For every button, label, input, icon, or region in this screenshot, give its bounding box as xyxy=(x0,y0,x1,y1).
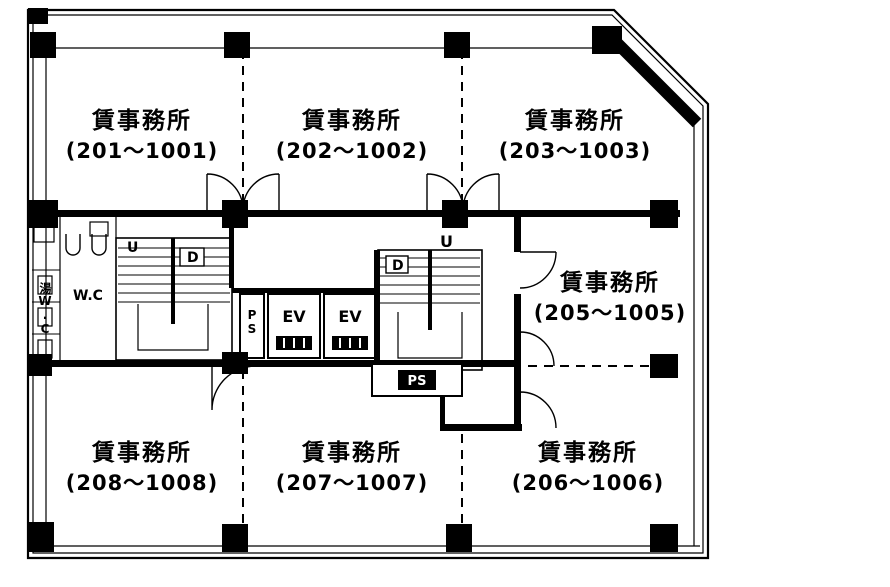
elevator-1: EV xyxy=(268,294,320,358)
urinal-fixture xyxy=(66,234,80,255)
elevator-2: EV xyxy=(324,294,376,358)
room-name: 賃事務所 xyxy=(559,269,660,296)
stair-up-label: U xyxy=(440,232,453,251)
column xyxy=(28,8,48,24)
column xyxy=(222,524,248,552)
elevator-label: EV xyxy=(338,307,362,326)
door-arc xyxy=(463,174,499,210)
wall-segment xyxy=(440,396,445,428)
room-units: (201〜1001) xyxy=(66,139,218,163)
room-201-1001: 賃事務所 (201〜1001) xyxy=(66,107,218,163)
wall-segment xyxy=(514,212,521,252)
stair-down-label: D xyxy=(187,250,199,266)
room-units: (203〜1003) xyxy=(499,139,651,163)
stair-rail xyxy=(171,238,175,324)
wc-area: W.C 湯W.C xyxy=(32,217,116,360)
room-name: 賃事務所 xyxy=(537,439,638,466)
floor-plan-page: W.C 湯W.C U D PS EV EV xyxy=(0,0,890,587)
wall-segment xyxy=(232,288,378,293)
room-units: (207〜1007) xyxy=(276,471,428,495)
door-arc xyxy=(243,174,279,210)
wc-label: W.C xyxy=(73,288,103,304)
room-207-1007: 賃事務所 (207〜1007) xyxy=(276,439,428,495)
room-206-1006: 賃事務所 (206〜1006) xyxy=(512,439,664,495)
column xyxy=(28,522,54,552)
room-202-1002: 賃事務所 (202〜1002) xyxy=(276,107,428,163)
column xyxy=(650,354,678,378)
urinal-fixture xyxy=(92,234,106,255)
ps-duct: PS xyxy=(372,364,462,396)
stairwell-right: D U xyxy=(378,232,482,370)
floor-plan-drawing: W.C 湯W.C U D PS EV EV xyxy=(0,0,890,587)
column xyxy=(224,32,250,58)
column xyxy=(444,32,470,58)
room-units: (205〜1005) xyxy=(534,301,686,325)
room-name: 賃事務所 xyxy=(301,439,402,466)
room-units: (202〜1002) xyxy=(276,139,428,163)
door-arc xyxy=(520,252,556,288)
room-name: 賃事務所 xyxy=(301,107,402,134)
column xyxy=(446,524,472,552)
column xyxy=(592,26,622,54)
room-208-1008: 賃事務所 (208〜1008) xyxy=(66,439,218,495)
service-room-label: 湯W.C xyxy=(38,281,52,336)
room-name: 賃事務所 xyxy=(91,107,192,134)
stair-rail xyxy=(428,250,432,330)
wall-segment xyxy=(440,424,522,431)
ps-duct-label: PS xyxy=(408,374,427,389)
pipe-shaft-label: PS xyxy=(245,308,259,336)
column xyxy=(30,32,56,58)
column xyxy=(650,524,678,552)
stair-down-label: D xyxy=(392,258,404,274)
room-units: (206〜1006) xyxy=(512,471,664,495)
stairwell-left: U D xyxy=(116,238,232,360)
door-arc xyxy=(520,332,554,366)
room-203-1003: 賃事務所 (203〜1003) xyxy=(499,107,651,163)
wall-segment xyxy=(28,210,680,217)
room-205-1005: 賃事務所 (205〜1005) xyxy=(534,269,686,325)
elevator-hall: PS EV EV xyxy=(240,294,376,358)
shaft-box xyxy=(34,226,54,242)
shaft-box xyxy=(90,222,108,236)
room-name: 賃事務所 xyxy=(524,107,625,134)
room-units: (208〜1008) xyxy=(66,471,218,495)
door-arc xyxy=(520,392,556,428)
room-name: 賃事務所 xyxy=(91,439,192,466)
stair-up-label: U xyxy=(127,240,138,256)
elevator-label: EV xyxy=(282,307,306,326)
